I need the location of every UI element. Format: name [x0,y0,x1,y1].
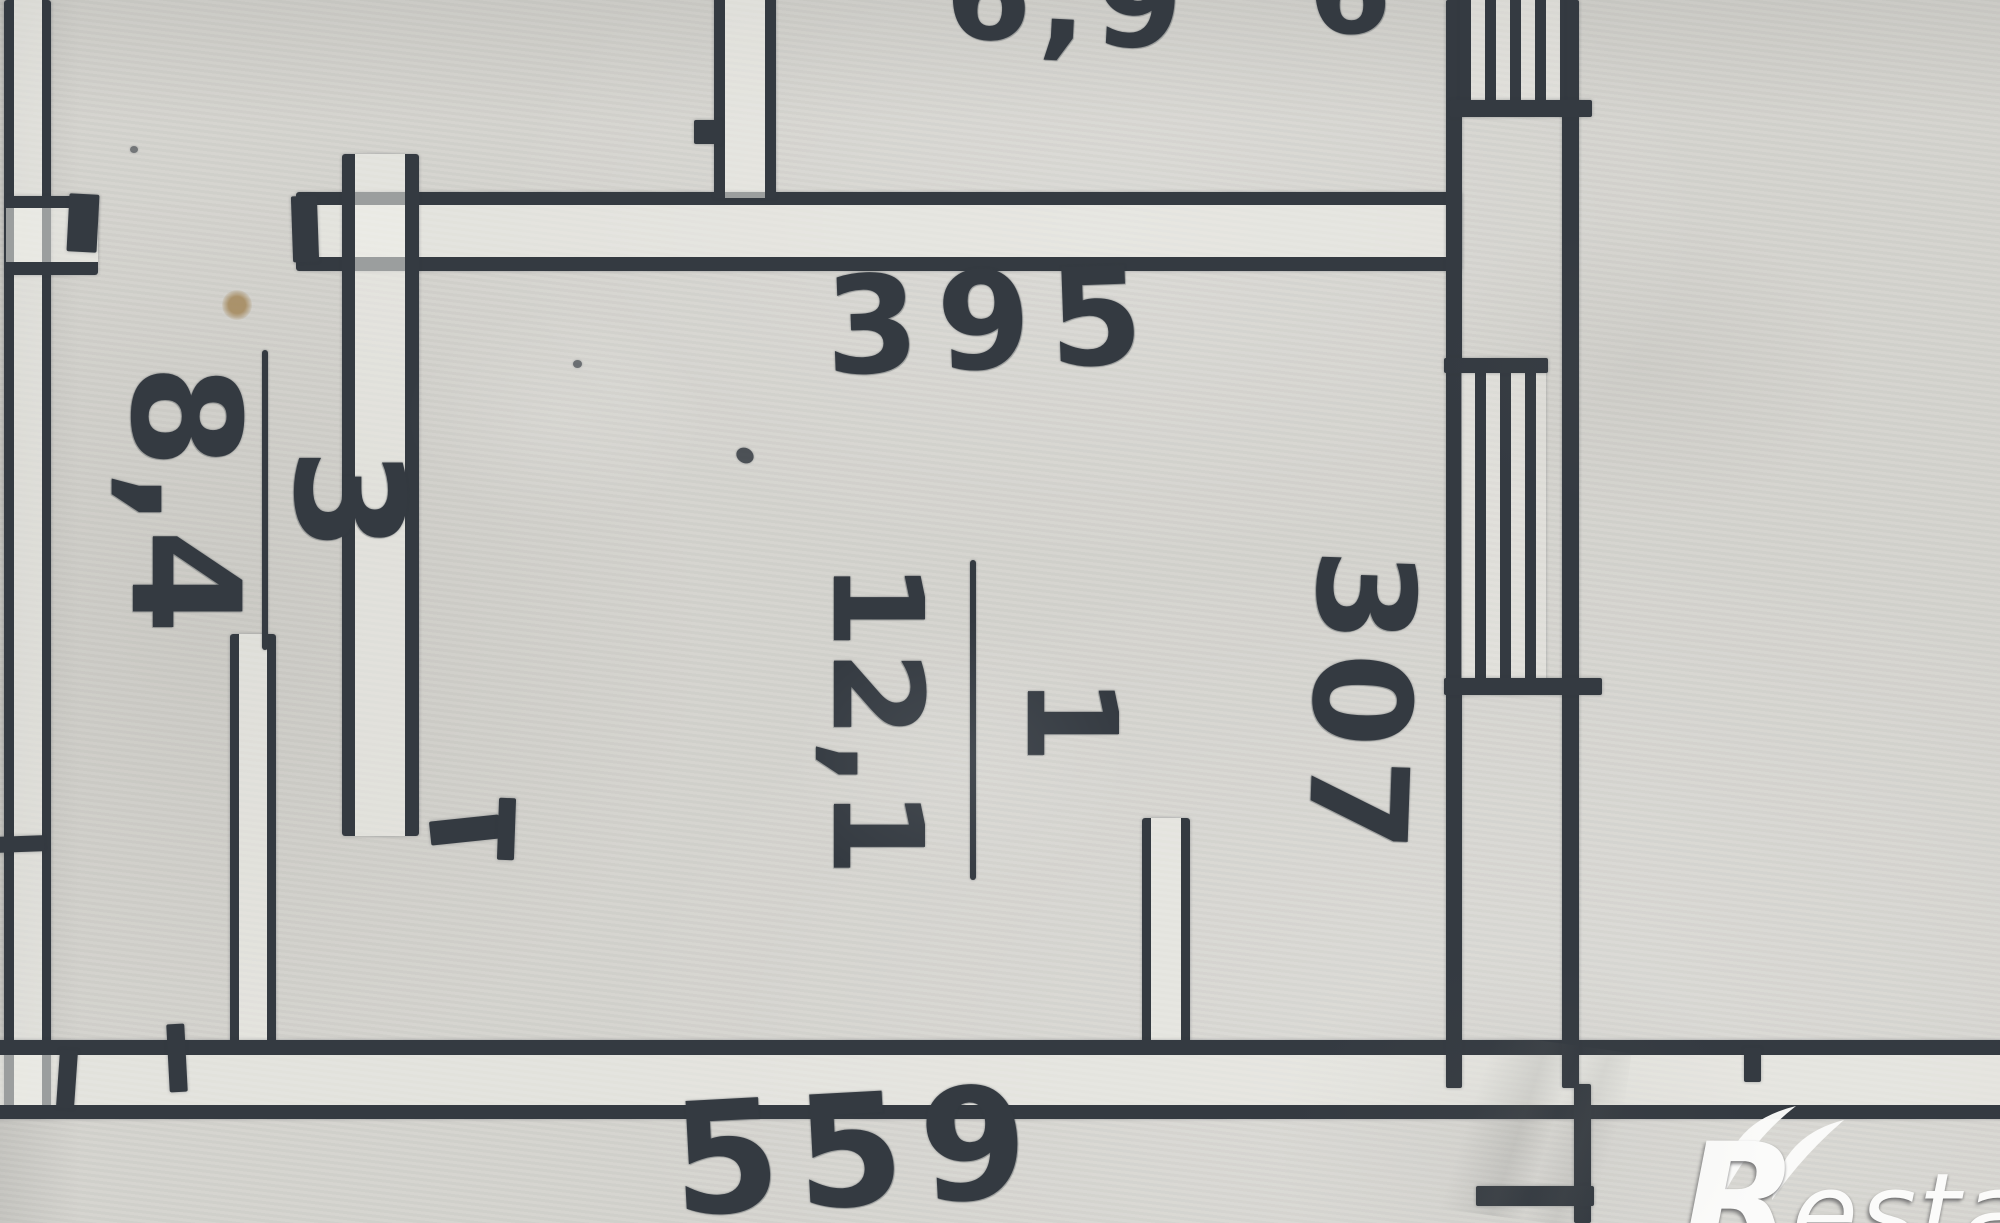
window-middle-icon [1450,366,1546,692]
wall-left-tick [0,835,44,853]
ink-speck [130,146,138,153]
dimension-bottom-width: 559 [668,1068,1047,1223]
paper-stain [222,290,252,320]
watermark-rest: estate [1792,1151,2000,1223]
restate-watermark: Restate [1682,1112,2000,1223]
ink-speck [573,360,582,368]
room-number: 1 [1017,677,1123,764]
window-top-icon [1460,0,1564,100]
room-label-3: 3 8,4 [120,350,410,650]
wall-right-outer-line [1562,0,1579,1088]
door-mark-horizontal [429,814,501,845]
partial-digit-top-right: 6 [1308,0,1392,50]
ink-speck [733,445,756,467]
window-middle-bottom-tick [1444,678,1602,695]
wall-upper-partition [714,0,776,198]
room-area: 8,4 [120,364,248,636]
dimension-top-width: 395 [823,252,1163,392]
window-middle-top-tick [1444,358,1548,373]
wall-left-stub-end [67,193,100,252]
room-number: 3 [283,448,411,552]
watermark-initial: R [1682,1112,1798,1223]
window-top-sill-tick [1450,100,1592,117]
wall-bottom-tick-2 [166,1024,188,1093]
room-label-1: 1 12,1 [823,560,1123,880]
dimension-right-height: 307 [1294,523,1426,887]
fraction-bar [970,560,976,880]
wall-bottom-tick-3 [1744,1048,1761,1082]
partial-digits-top-center: 6,9 [942,0,1193,67]
wall-top-left-cap [291,196,319,263]
door-mark-vertical [497,798,516,861]
wall-partition-lower-left [230,634,276,1048]
paper-crease [1428,1028,1631,1223]
room-area: 12,1 [823,562,929,878]
wall-left-exterior [4,0,51,1108]
floor-plan-scan: 395 559 307 3 8,4 1 12,1 6,9 6 Restate [0,0,2000,1223]
wall-upper-partition-tick [694,120,722,144]
wall-partition-lower-right [1142,818,1190,1046]
